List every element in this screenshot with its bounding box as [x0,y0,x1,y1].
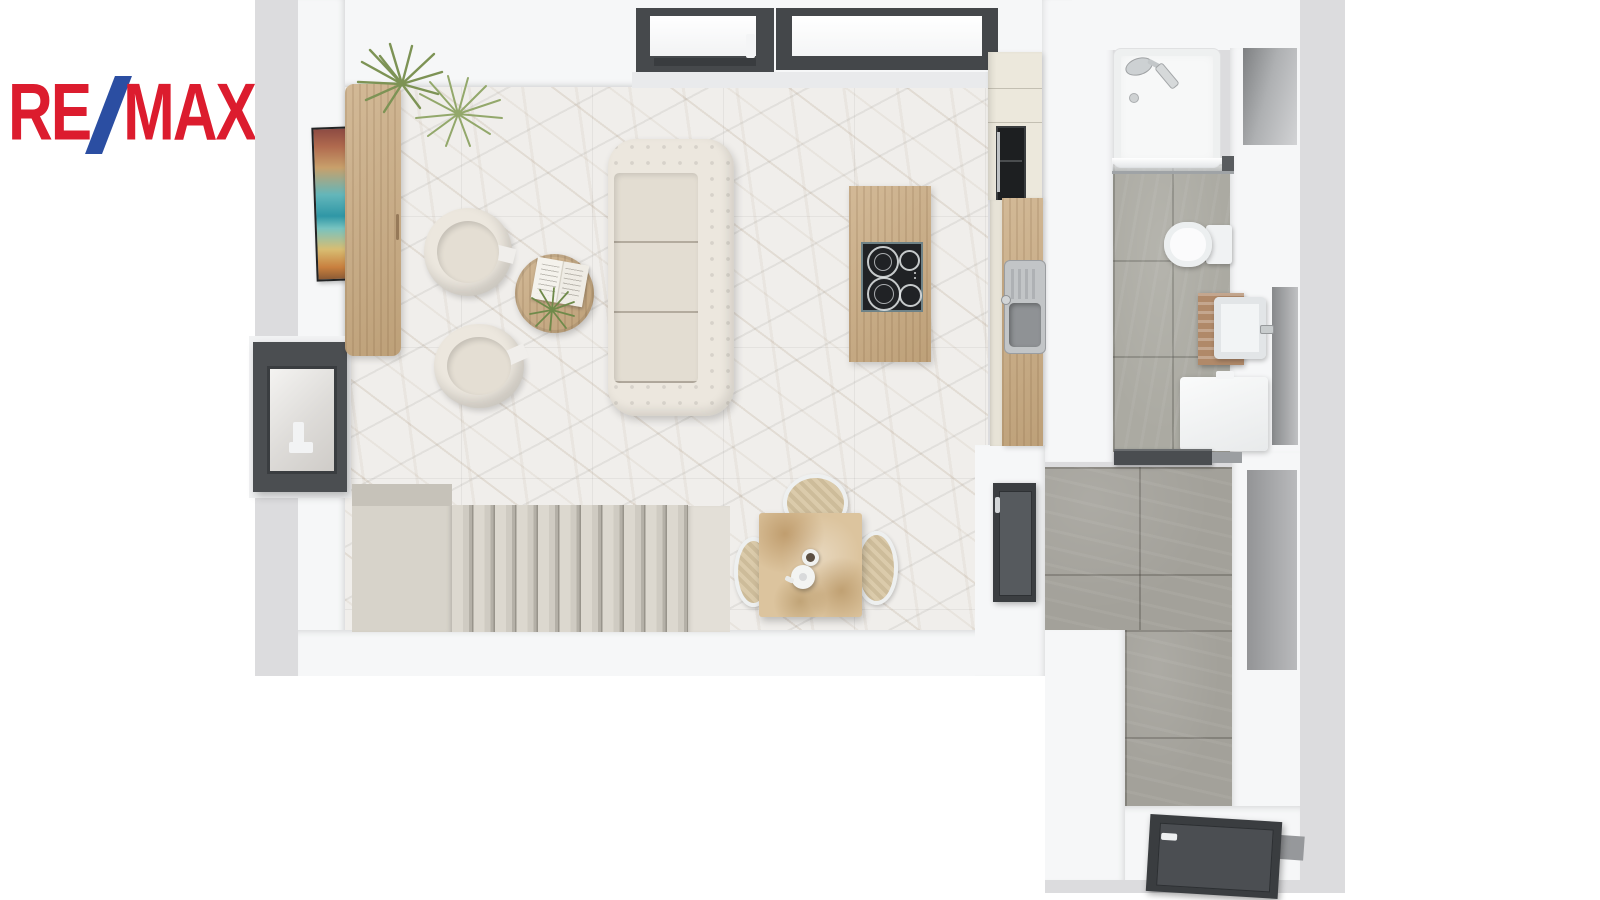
sink-faucet [1001,295,1011,305]
round-armchair-1 [424,208,512,296]
cabinet-seam-1 [988,88,1042,89]
wall-bathroom-top [1072,0,1300,50]
kitchen-island [849,186,931,362]
hallway-floor-upper [1032,467,1232,632]
sofa-seat-cushions [614,173,698,383]
bathtub [1113,48,1221,168]
vanity [1198,293,1270,365]
sink-bowl [1009,303,1041,347]
entry-door [1146,814,1282,899]
skylight-left-sash [654,58,756,66]
cabinet-seam-2 [988,122,1042,123]
skylight-right [776,8,998,70]
wall-kitchen-bath [1042,0,1113,462]
skylight-sill [632,72,1006,88]
cooktop-burner-large-1 [867,246,899,278]
cooktop-control-dot-2 [914,277,916,279]
shower-glass-screen [1112,158,1234,174]
skylight-left [636,8,774,74]
casement-window-glass [267,366,337,474]
entry-door-handle [1161,833,1177,841]
stair-steps [452,505,688,632]
casement-window [253,342,347,492]
vanity-faucet [1260,325,1274,334]
wall-hallway-left [1045,630,1125,880]
stair-end-panel [688,506,730,632]
hall-door-handle [995,497,1000,513]
coffee-table-plant [526,286,578,332]
cup [802,549,819,566]
floorplan-render: RE MAX [0,0,1600,900]
screen-end-cap [1222,156,1234,171]
wall-bottom-living [298,630,1045,676]
stair-landing-edge [352,484,452,506]
stair-landing [352,484,452,632]
skylight-left-glass [650,16,756,56]
kitchen-counter [1002,198,1043,446]
toilet-seat [1164,222,1212,267]
remax-logo: RE MAX [8,70,255,154]
oven-handle [997,132,1000,192]
logo-text-max: MAX [123,73,255,154]
kitchen-sink [1004,260,1046,354]
wall-niche-top [1243,48,1297,145]
hall-door-panel [999,491,1032,596]
sideboard-handle [396,214,399,240]
oven-seam [1000,160,1022,162]
wall-niche-hallway [1247,470,1297,670]
hallway-floor-lower [1125,630,1232,810]
induction-cooktop [861,242,923,312]
bathtub-drain [1129,93,1139,103]
armchair-2-cushion [447,337,511,395]
chesterfield-sofa [608,139,734,416]
cooktop-burner-small-1 [899,250,920,271]
potted-plant [350,42,510,162]
cooktop-burner-large-2 [867,277,901,311]
tall-cabinet [988,52,1042,200]
hall-door [993,483,1036,602]
toilet [1164,221,1232,268]
window-handle-base [289,442,313,453]
shower-head [1123,54,1155,79]
cooktop-control-dot-1 [914,272,916,274]
washing-machine-tab [1216,371,1234,379]
cup-coffee [806,553,815,562]
logo-text-re: RE [8,73,90,154]
armchair-1-cushion [437,221,499,283]
cooktop-burner-small-2 [899,284,922,307]
bathroom-door-jamb [1212,452,1242,463]
teapot-lid [799,573,807,581]
wall-niche-middle [1272,287,1298,445]
vanity-basin [1214,297,1266,359]
sink-drainer [1011,269,1039,299]
skylight-right-glass [792,16,982,56]
teapot [791,565,815,589]
washing-machine [1180,377,1268,451]
shower-mixer [1154,62,1180,90]
round-armchair-2 [434,324,524,408]
built-in-oven [996,126,1026,202]
bathroom-door [1114,449,1212,465]
skylight-left-handle [746,34,755,58]
